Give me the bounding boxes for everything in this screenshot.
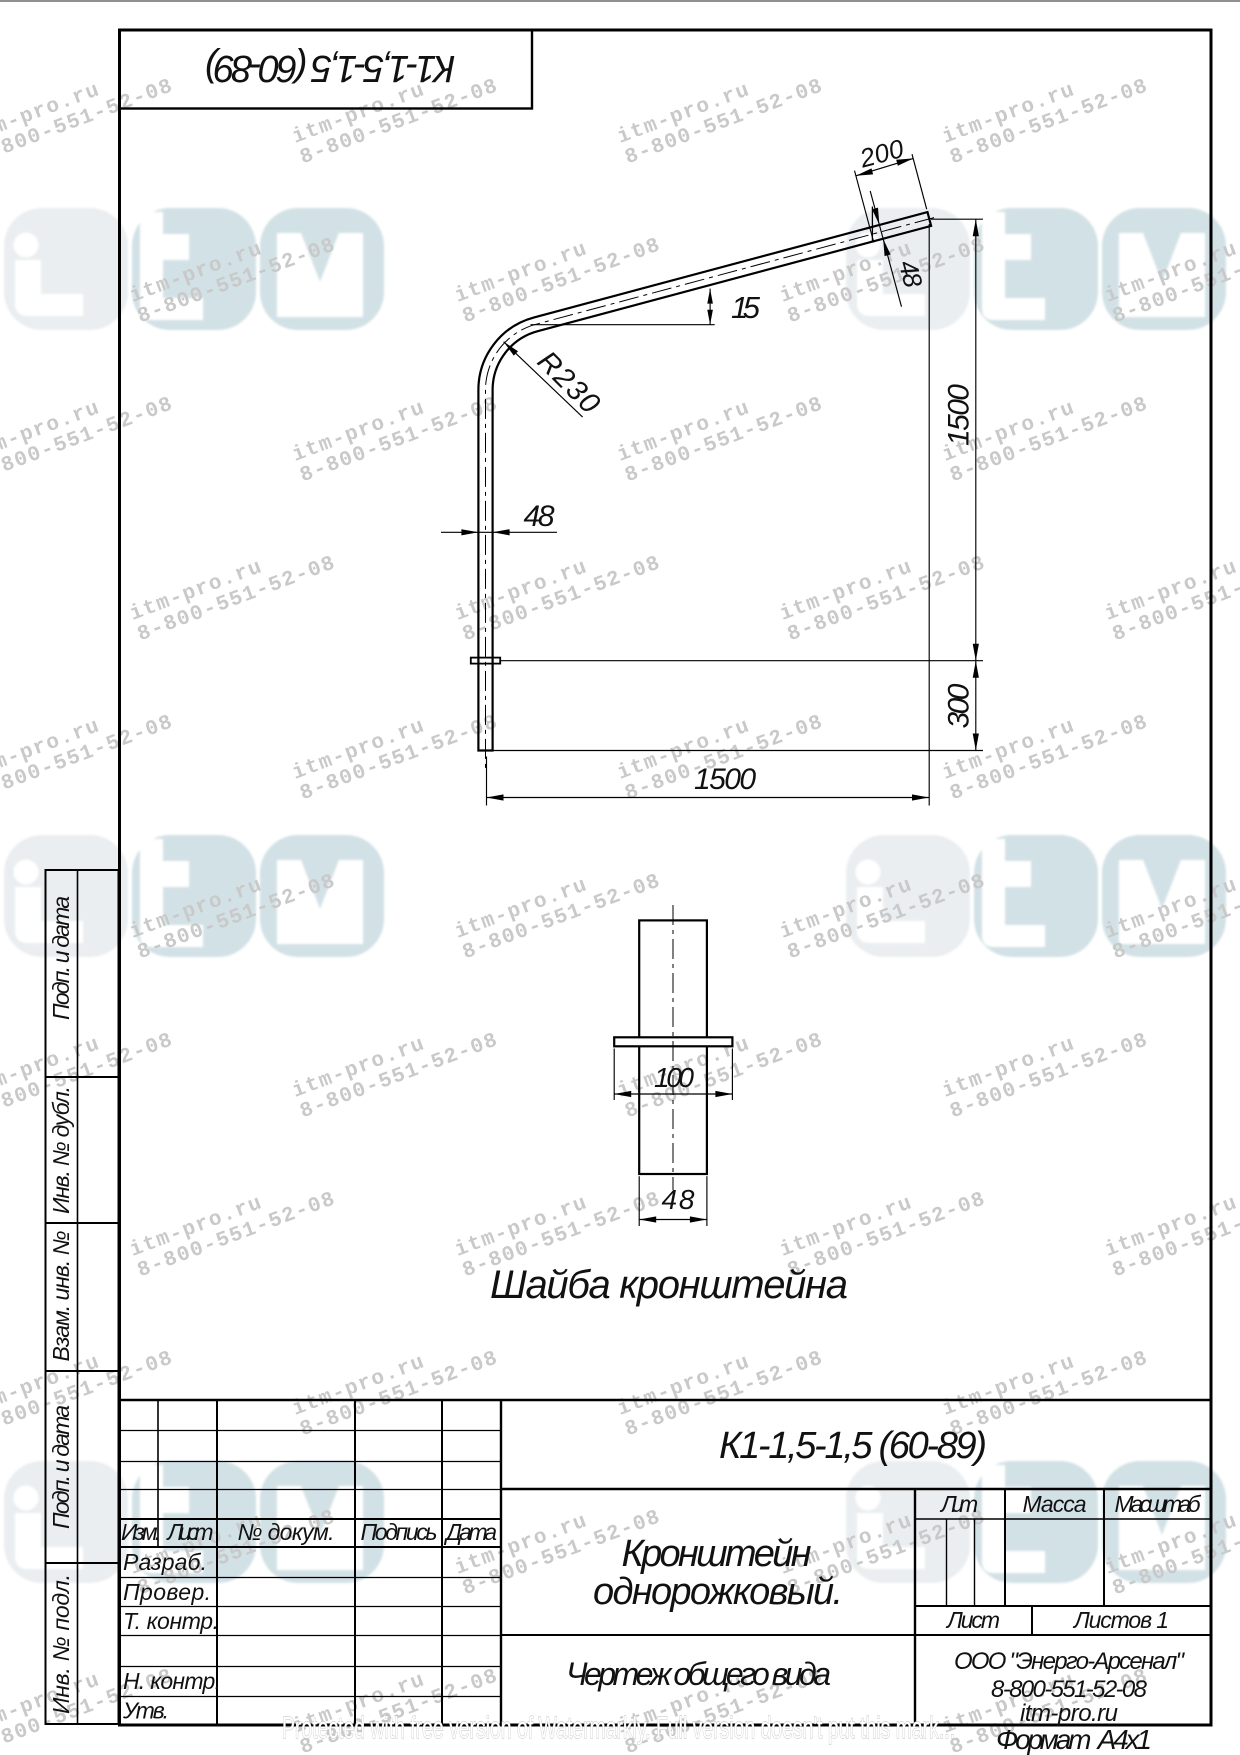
svg-text:Инв. № дубл.: Инв. № дубл.	[48, 1086, 74, 1214]
svg-text:К1-1,5-1,5 (60-89): К1-1,5-1,5 (60-89)	[719, 1425, 987, 1467]
svg-text:15: 15	[731, 290, 761, 325]
svg-text:Подпись: Подпись	[361, 1519, 438, 1545]
svg-text:100: 100	[654, 1062, 694, 1093]
svg-text:Инв. № подл.: Инв. № подл.	[48, 1574, 74, 1714]
svg-text:Кронштейн: Кронштейн	[622, 1533, 812, 1575]
svg-text:Взам. инв. №: Взам. инв. №	[48, 1230, 74, 1361]
svg-text:Масштаб: Масштаб	[1115, 1491, 1202, 1517]
svg-text:Чертеж общего вида: Чертеж общего вида	[566, 1656, 831, 1692]
svg-text:Подп. и дата: Подп. и дата	[48, 1405, 74, 1529]
svg-text:Protected with free version of: Protected with free version of Watermark…	[282, 1710, 955, 1745]
svg-text:К1-1,5-1,5 (60-89): К1-1,5-1,5 (60-89)	[205, 47, 456, 89]
svg-text:Провер.: Провер.	[123, 1579, 211, 1605]
svg-text:Лист: Лист	[945, 1607, 1000, 1633]
svg-text:ООО "Энерго-Арсенал": ООО "Энерго-Арсенал"	[954, 1648, 1185, 1675]
svg-text:Подп. и дата: Подп. и дата	[48, 896, 74, 1020]
svg-text:1500: 1500	[694, 763, 756, 796]
svg-text:Разраб.: Разраб.	[123, 1549, 207, 1575]
svg-text:48: 48	[662, 1184, 695, 1215]
svg-text:1500: 1500	[943, 384, 976, 446]
svg-text:8-800-551-52-08: 8-800-551-52-08	[991, 1676, 1148, 1703]
svg-text:Т. контр.: Т. контр.	[123, 1608, 219, 1634]
svg-text:однорожковый.: однорожковый.	[593, 1571, 843, 1613]
svg-text:300: 300	[943, 683, 976, 728]
svg-text:Листов 1: Листов 1	[1072, 1607, 1169, 1633]
svg-text:№ докум.: № докум.	[238, 1519, 335, 1545]
svg-text:Лист: Лист	[166, 1519, 214, 1545]
svg-text:Формат А4х1: Формат А4х1	[996, 1724, 1152, 1755]
svg-text:Шайба кронштейна: Шайба кронштейна	[490, 1263, 848, 1307]
svg-text:Изм.: Изм.	[121, 1519, 161, 1545]
svg-text:Н. контр.: Н. контр.	[123, 1668, 221, 1694]
svg-text:48: 48	[524, 500, 555, 533]
svg-text:Масса: Масса	[1023, 1491, 1087, 1517]
svg-text:Утв.: Утв.	[122, 1698, 169, 1724]
svg-text:itm-pro.ru: itm-pro.ru	[1020, 1700, 1118, 1727]
svg-text:Дата: Дата	[443, 1519, 497, 1545]
svg-text:Лит.: Лит.	[939, 1491, 979, 1517]
